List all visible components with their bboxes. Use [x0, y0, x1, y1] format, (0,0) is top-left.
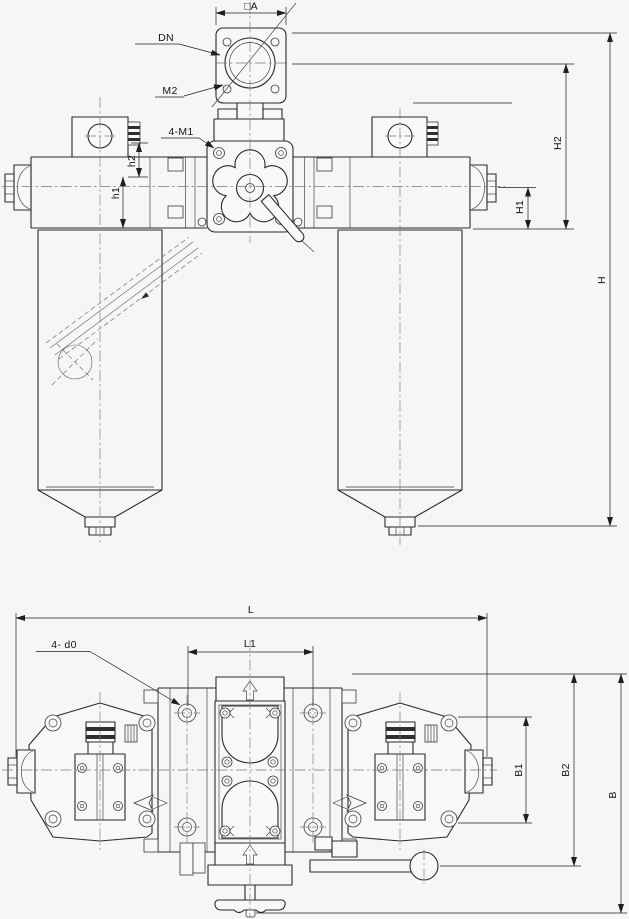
drawing-sheet: □A DN M2 4-M1 h2 h1 H2: [0, 0, 629, 919]
callout-label-dn: DN: [158, 32, 174, 44]
plan-right-port: [465, 750, 492, 793]
left-vent-screw: [128, 122, 140, 145]
element-removal-phantom: [46, 237, 202, 385]
front-view: □A DN M2 4-M1 h2 h1 H2: [2, 1, 617, 546]
right-filter-head: [293, 157, 470, 228]
dim-label-L1: L1: [244, 638, 256, 650]
right-side-port: [470, 165, 496, 210]
valve-neck: [214, 103, 284, 141]
callout-label-m2: M2: [162, 85, 177, 97]
dim-label-H2: H2: [552, 136, 564, 150]
dim-label-H: H: [596, 276, 608, 284]
dim-label-h1: h1: [110, 187, 122, 199]
plan-handle: [310, 837, 438, 880]
right-lifting-lug: [372, 117, 427, 157]
callout-label-4m1: 4-M1: [168, 126, 193, 138]
left-side-port: [5, 165, 31, 210]
plan-view: L L1 4- d0 B1 B2 B: [2, 604, 627, 918]
phantom-arrowhead: [141, 292, 149, 299]
dim-label-square-a: □A: [244, 1, 258, 13]
callout-label-4d0: 4- d0: [51, 639, 76, 651]
dim-label-h2: h2: [126, 155, 138, 167]
dim-label-B2: B2: [560, 763, 572, 776]
top-flange: [212, 3, 296, 107]
duplex-filter-technical-drawing: □A DN M2 4-M1 h2 h1 H2: [0, 0, 629, 919]
dim-label-L: L: [248, 604, 254, 616]
front-dimensions: □A DN M2 4-M1 h2 h1 H2: [110, 1, 617, 527]
plan-left-port: [8, 750, 35, 793]
right-vent-screw: [427, 122, 438, 145]
dim-label-B: B: [607, 791, 619, 798]
dim-label-H1: H1: [514, 200, 526, 214]
dim-label-B1: B1: [513, 763, 525, 776]
